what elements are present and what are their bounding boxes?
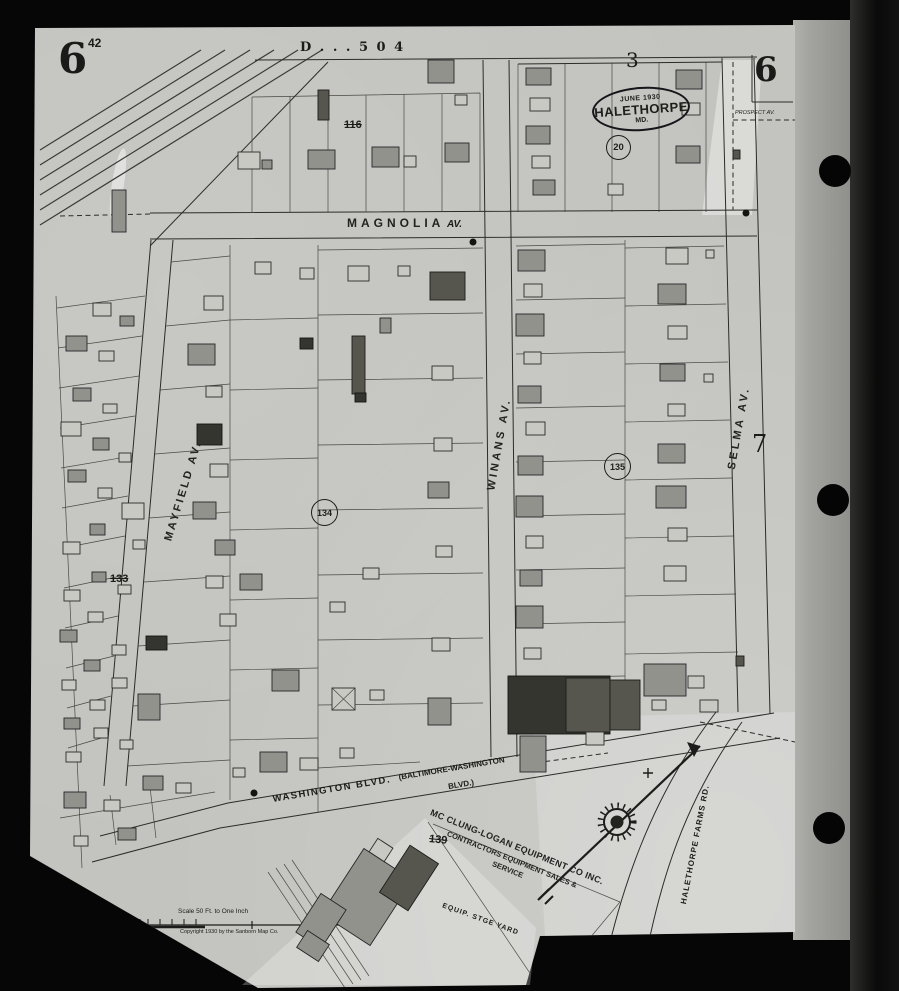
adjacent-sheet-7: 7 <box>752 430 767 458</box>
stamp-state: MD. <box>635 116 648 124</box>
circled-number-20: 20 <box>606 135 631 160</box>
sheet-border-lines <box>255 55 793 102</box>
film-edge-shadow <box>850 0 899 991</box>
crossed-number-116: 116 <box>344 119 362 131</box>
street-label-magnolia: MAGNOLIA <box>347 216 444 230</box>
scale-label: Scale 50 Ft. to One Inch <box>178 908 248 915</box>
scanned-map-photo: 42 6 D . . . 5 0 4 3 6 PROSPECT AV. JUNE… <box>0 0 899 991</box>
binder-hole <box>819 155 851 187</box>
circled-number-134: 134 <box>311 499 338 526</box>
sheet-number-top-right: 6 <box>754 50 778 90</box>
crossed-number-133: 133 <box>110 573 128 585</box>
copyright-label: Copyright 1930 by the Sanborn Map Co. <box>180 929 278 935</box>
building-footprints <box>60 60 744 961</box>
binder-hole <box>817 484 849 516</box>
film-frame-number: 42 <box>88 36 101 50</box>
binder-hole <box>813 812 845 844</box>
street-label-prospect: PROSPECT AV. <box>735 110 775 116</box>
circled-number-135: 135 <box>604 453 631 480</box>
lot-lines <box>56 62 738 988</box>
street-label-magnolia-av: AV. <box>447 219 462 230</box>
adjacent-sheet-3: 3 <box>626 48 639 72</box>
sheet-number-top-left: 6 <box>58 34 87 83</box>
plate-header: D . . . 5 0 4 <box>300 40 405 55</box>
street-lines <box>92 58 780 988</box>
